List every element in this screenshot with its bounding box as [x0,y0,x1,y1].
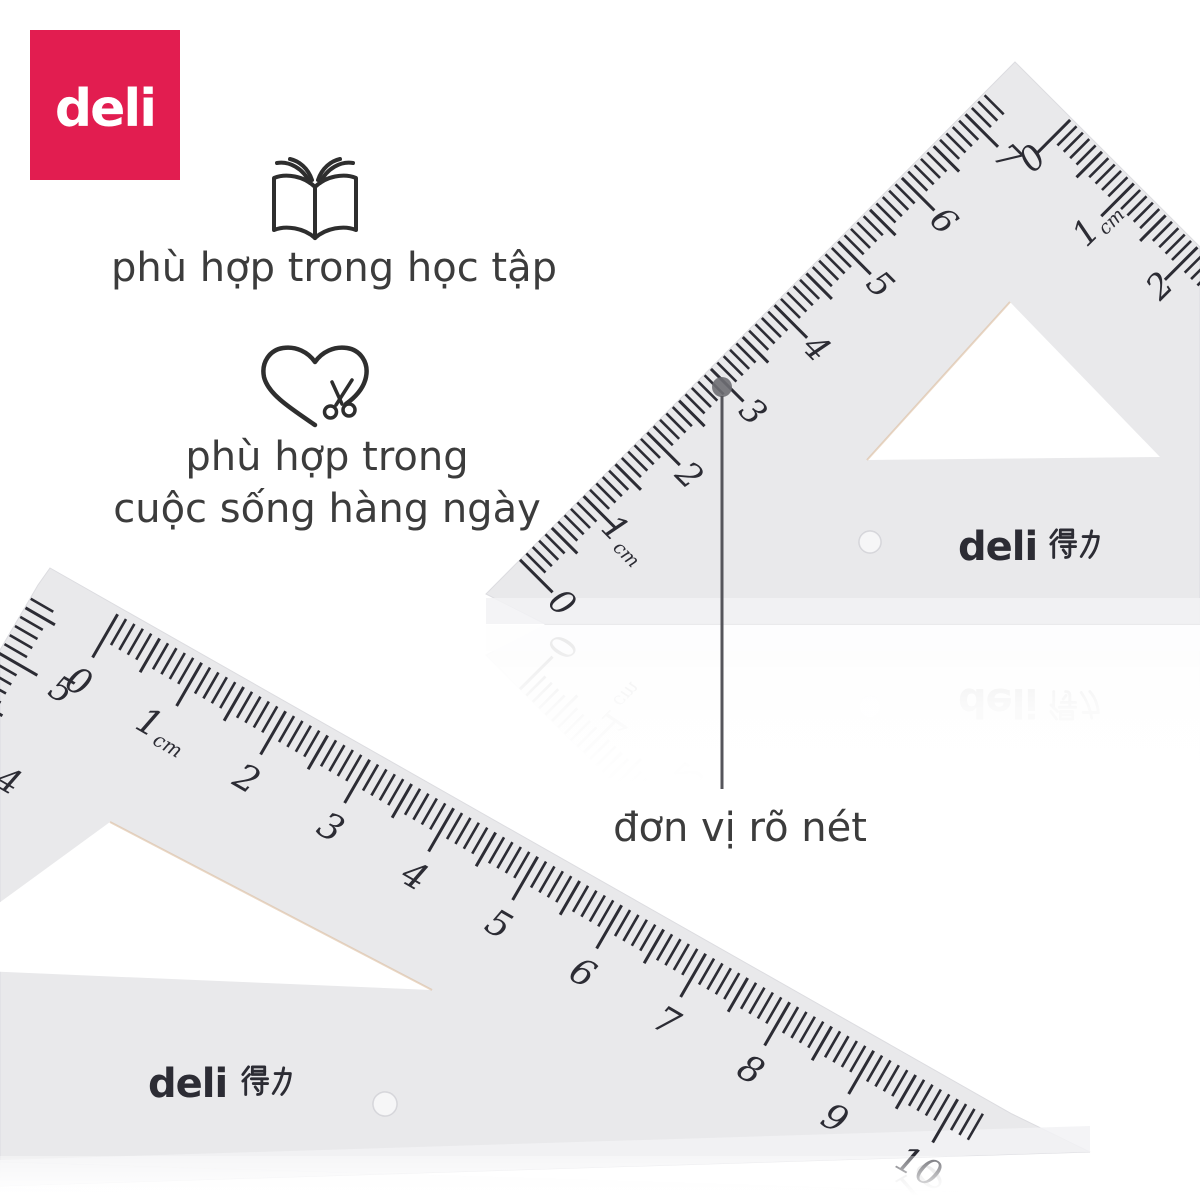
top-ruler-bottom-bevel [486,598,1200,624]
brand-latin-text: deli [148,1061,227,1107]
product-photo-canvas: 01cm234567 01cm2 deli 01cm2345678910 54 … [0,0,1200,1200]
callout-dot [712,377,732,397]
feature-daily-caption-line2: cuộc sống hàng ngày [113,486,541,532]
callout-label: đơn vị rõ nét [613,805,867,851]
bottom-reflection-fade [0,1156,1200,1200]
brand-latin-text: deli [958,524,1037,570]
top-ruler-hole [859,531,881,553]
logo-wordmark: deli [55,79,155,139]
deli-logo: deli [30,30,180,180]
bottom-ruler-hole [373,1092,397,1116]
feature-daily-caption-line1: phù hợp trong [185,434,468,480]
feature-study-caption: phù hợp trong học tập [111,245,557,291]
